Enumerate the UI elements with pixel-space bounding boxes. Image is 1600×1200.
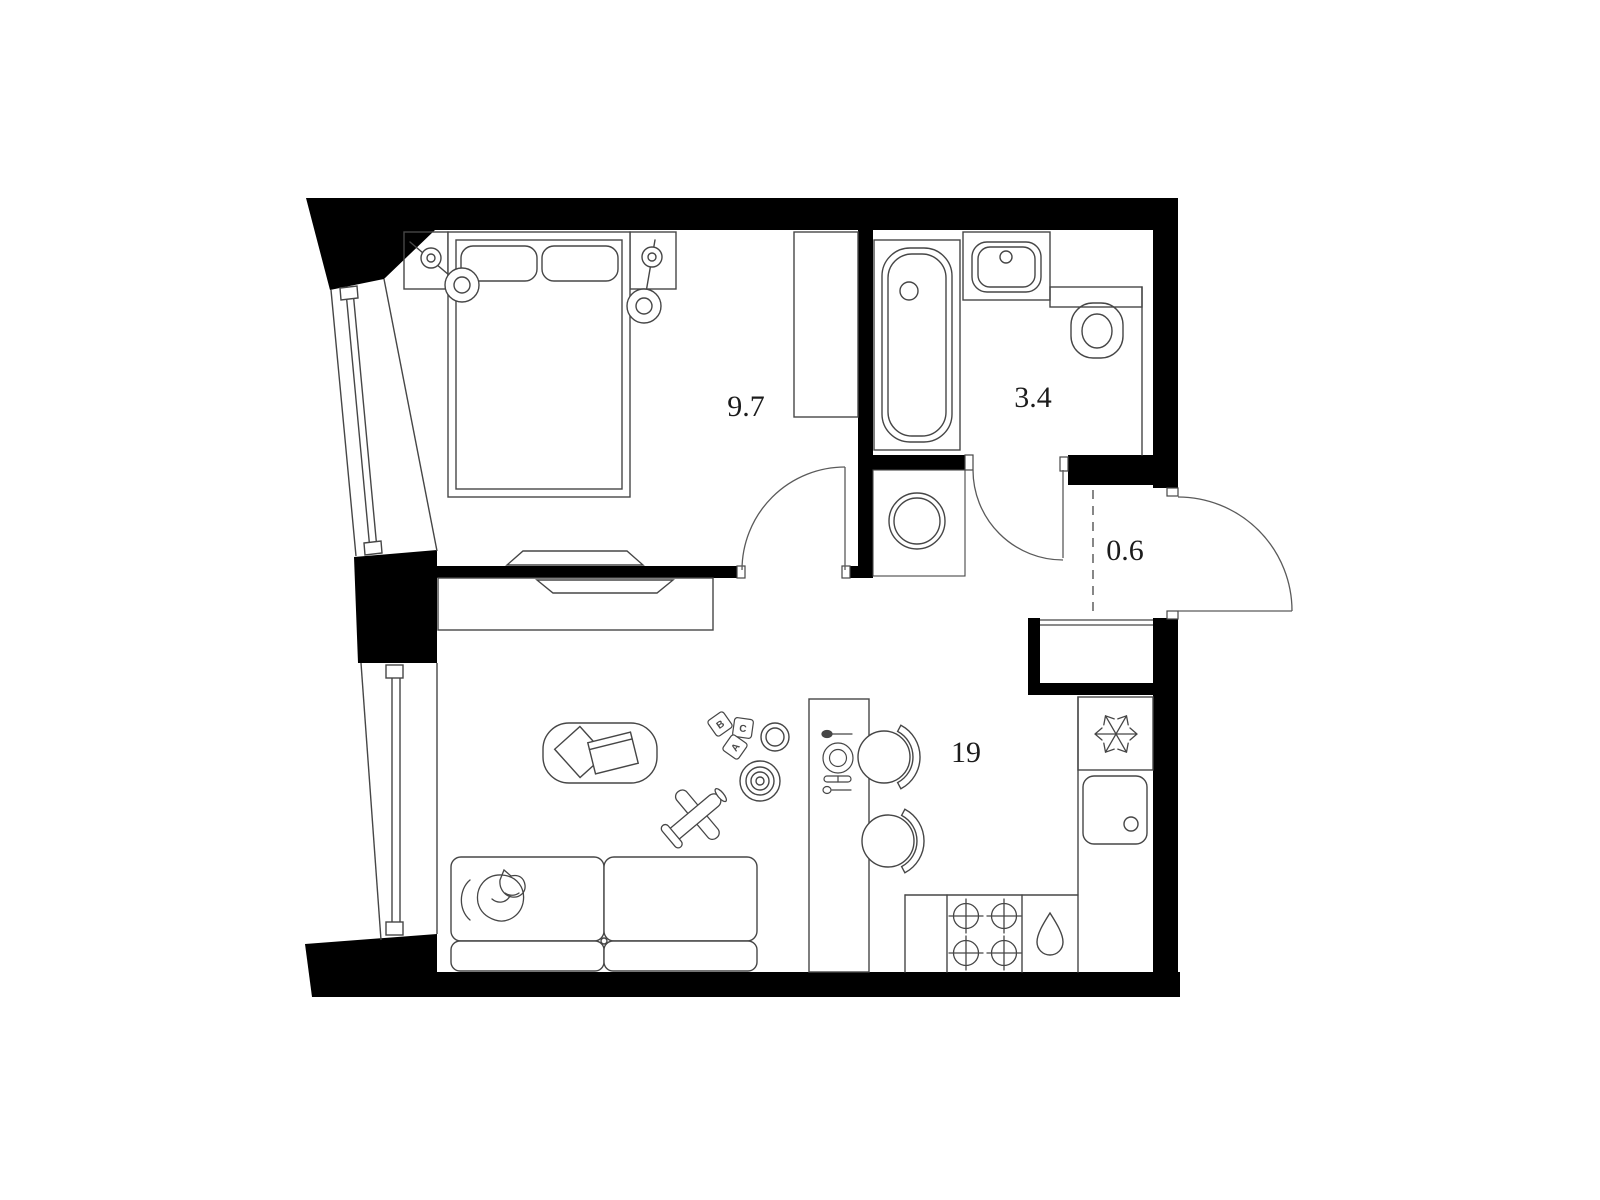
- lamp-base: [642, 247, 662, 267]
- tv-console: [438, 578, 713, 630]
- living-room-window: [361, 663, 437, 940]
- wall-bathroom-left: [858, 230, 873, 578]
- chair-seat: [862, 815, 914, 867]
- bedroom-door: [742, 467, 845, 570]
- bar-chair-2: [862, 809, 924, 873]
- wardrobe-cabinet: [794, 232, 858, 417]
- sofa-front-left: [451, 941, 604, 971]
- toilet-bowl: [1071, 303, 1123, 358]
- burner: [987, 899, 1021, 933]
- floor-plan-page: B C A: [0, 0, 1600, 1200]
- floor-plan: B C A: [0, 0, 1600, 1200]
- wall-top: [396, 198, 1178, 230]
- toy-plane: [649, 770, 742, 862]
- lamp-shade: [445, 268, 479, 302]
- toilet-tank: [1050, 287, 1142, 307]
- wall-corner-bottom-left: [305, 934, 437, 997]
- toy-blocks: B C A: [707, 711, 754, 760]
- window-cap-top: [340, 286, 358, 300]
- window-glazing-2: [353, 291, 377, 549]
- hallway-fixtures: [873, 470, 965, 576]
- block-letter: C: [738, 723, 747, 735]
- sofa-seat-left: [451, 857, 604, 941]
- wall-mid-left-pier: [354, 550, 437, 663]
- kitchen-sink: [1083, 776, 1147, 844]
- jamb-bedroom-left: [737, 566, 745, 578]
- window-cap-top: [386, 665, 403, 678]
- door-swing-arc: [1178, 497, 1292, 611]
- toy-block-b: B: [707, 711, 733, 737]
- stove-burners: [949, 899, 1021, 970]
- living-room-furniture: B C A: [438, 578, 789, 971]
- toy-plate: [761, 723, 789, 751]
- jamb-entrance-top: [1167, 488, 1178, 496]
- jamb-entrance-bottom: [1167, 611, 1178, 619]
- window-cap-bottom: [364, 541, 382, 555]
- sofa-seat-right: [604, 857, 757, 941]
- wall-entry-closet-bottom: [1028, 683, 1153, 695]
- window-inner-edge: [384, 279, 437, 551]
- jamb-bathroom-left: [965, 455, 973, 470]
- bathtub: [874, 240, 960, 450]
- bathroom-door: [973, 470, 1063, 560]
- window-glazing-1: [346, 292, 370, 550]
- washbasin: [963, 232, 1050, 300]
- lamp-right: [627, 240, 662, 323]
- bathroom-fixtures: [874, 232, 1142, 455]
- bedroom-tv: [507, 551, 643, 565]
- burner: [987, 936, 1021, 970]
- toy-rings: [740, 761, 780, 801]
- window-outer-edge: [361, 663, 381, 940]
- refrigerator: [1078, 697, 1153, 770]
- door-swing-arc: [973, 470, 1063, 560]
- room-label-living-kitchen: 19: [951, 736, 981, 769]
- washing-machine: [873, 470, 965, 576]
- bedroom-window: [331, 279, 437, 556]
- wall-bottom: [435, 972, 1180, 997]
- wall-right-lower: [1153, 618, 1178, 997]
- living-room-tv: [537, 580, 673, 593]
- kitchen-counter-bottom: [905, 895, 1078, 972]
- wall-bedroom-partition: [437, 566, 737, 578]
- bar-table: [809, 699, 869, 972]
- door-swing-arc: [742, 467, 845, 570]
- lamp-base: [421, 248, 441, 268]
- snowflake-icon: [1095, 713, 1137, 755]
- jamb-bathroom-right: [1060, 457, 1068, 471]
- room-label-bedroom: 9.7: [727, 390, 765, 423]
- lamp-shade: [627, 289, 661, 323]
- burner: [949, 899, 983, 933]
- sink-faucet: [1124, 817, 1138, 831]
- chair-seat: [858, 731, 910, 783]
- wall-right-upper: [1153, 230, 1178, 488]
- toilet: [1050, 287, 1142, 358]
- washbasin-faucet: [1000, 251, 1012, 263]
- wall-bathroom-bottom-right: [1068, 455, 1153, 485]
- window-cap-bottom: [386, 922, 403, 935]
- doors: [742, 467, 1292, 625]
- sofa-front-right: [604, 941, 757, 971]
- room-label-entry: 0.6: [1106, 534, 1144, 567]
- jamb-bedroom-right: [842, 566, 850, 578]
- kitchen-fixtures: [809, 697, 1153, 972]
- room-label-bathroom: 3.4: [1014, 381, 1052, 414]
- water-drop-icon: [1037, 913, 1063, 955]
- bedroom-furniture: [404, 232, 858, 565]
- bathtub-drain: [900, 282, 918, 300]
- window-outer-edge: [331, 290, 356, 556]
- bed-frame: [448, 232, 630, 497]
- entrance-door: [1178, 497, 1292, 611]
- bed: [448, 232, 630, 497]
- coffee-table: [543, 723, 657, 783]
- sofa: [451, 857, 757, 971]
- wall-bathroom-bottom-left: [858, 455, 965, 470]
- entry-closet-front: [1040, 620, 1153, 625]
- burner: [949, 936, 983, 970]
